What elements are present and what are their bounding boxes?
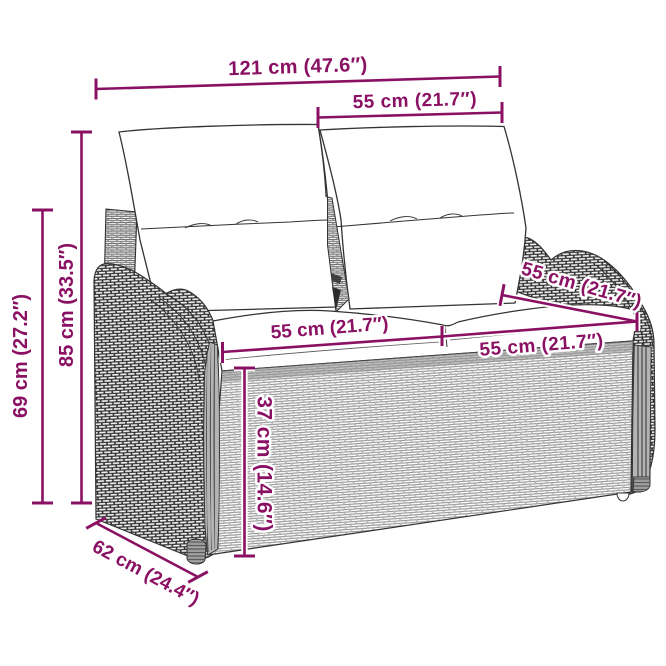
svg-text:121 cm (47.6″): 121 cm (47.6″) [228,54,368,80]
svg-text:85 cm (33.5″): 85 cm (33.5″) [56,243,78,367]
svg-text:55 cm (21.7″): 55 cm (21.7″) [352,89,477,113]
svg-text:37 cm (14.6″): 37 cm (14.6″) [253,396,276,532]
svg-text:69 cm (27.2″): 69 cm (27.2″) [10,294,32,418]
